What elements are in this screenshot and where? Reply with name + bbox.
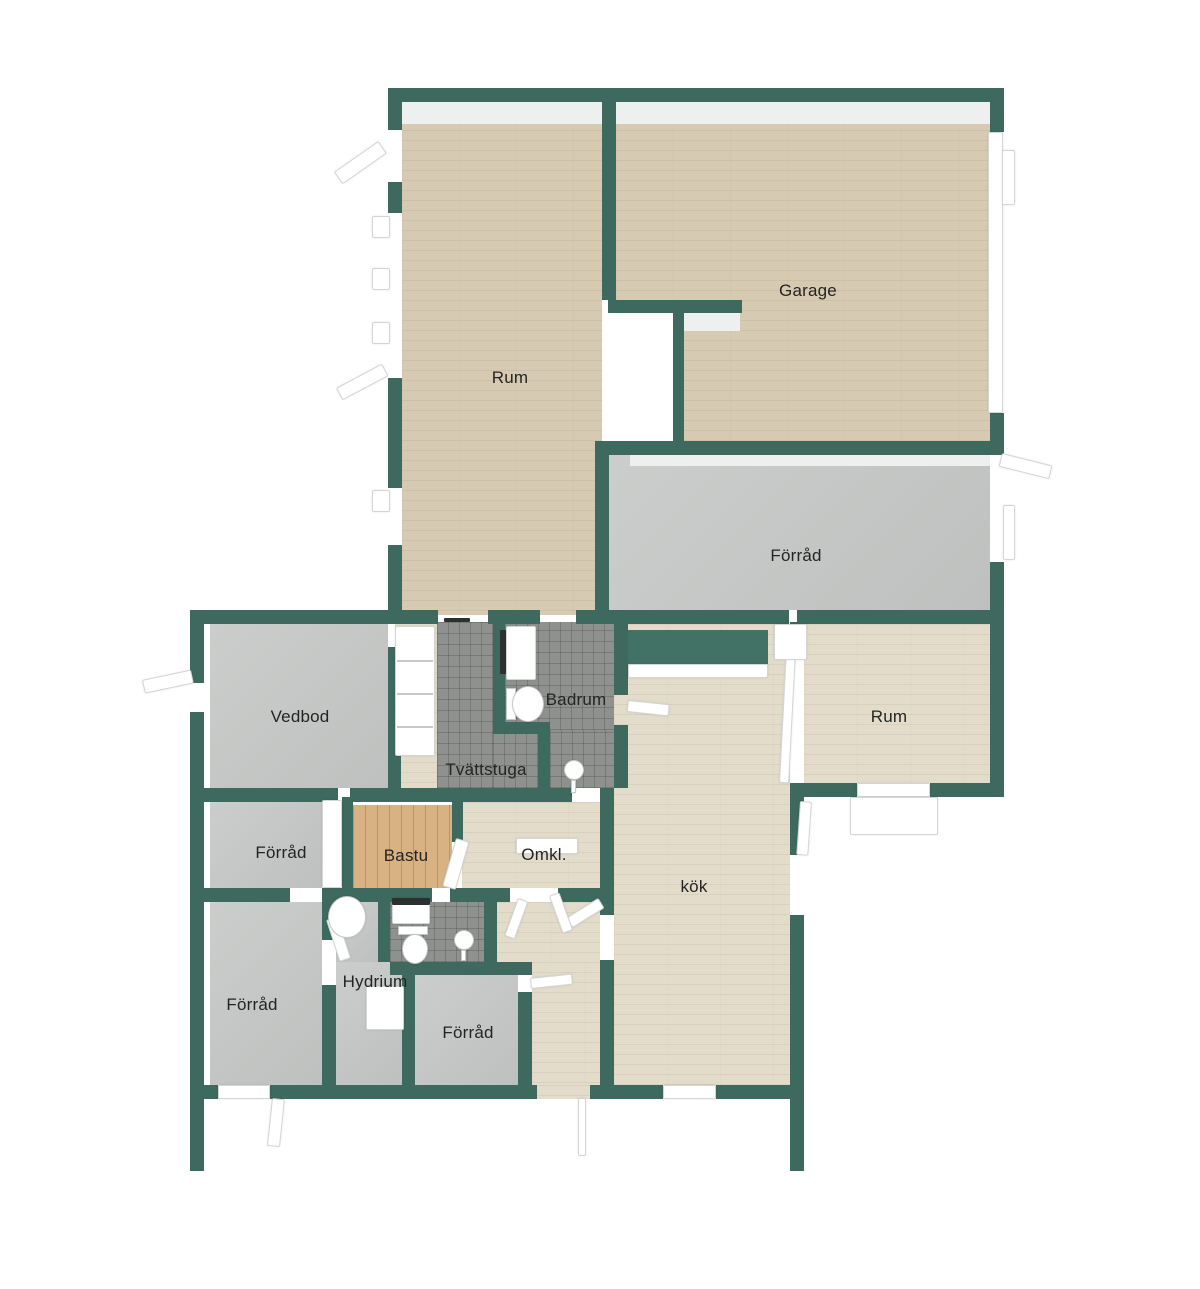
- wall: [484, 888, 497, 962]
- wall: [190, 788, 338, 802]
- wall: [493, 722, 550, 734]
- door-leaf-entrance: [578, 1098, 586, 1156]
- sink-wc-top: [392, 898, 430, 905]
- wall: [196, 610, 388, 624]
- garage-passage: [608, 313, 673, 441]
- shower-head-badrum: [564, 760, 584, 780]
- wall: [538, 734, 550, 788]
- door-strip-forrad-left: [322, 800, 342, 888]
- closet-hall: [395, 626, 435, 756]
- wall: [673, 313, 684, 441]
- wall-face-top: [402, 102, 990, 124]
- room-label-bastu: Bastu: [384, 846, 428, 866]
- garage-window-strip: [988, 132, 1003, 413]
- wall: [595, 441, 609, 624]
- window-sill: [372, 216, 390, 238]
- wall: [614, 725, 628, 788]
- room-label-forrad-left: Förråd: [255, 843, 306, 863]
- shower-stem-wc: [461, 950, 466, 961]
- door-leaf-forrad-main: [999, 453, 1053, 479]
- wall: [930, 783, 1004, 797]
- wall: [518, 992, 532, 1085]
- floor-forrad-bl: [210, 902, 322, 1085]
- wall: [388, 88, 1004, 102]
- floor-forrad-main: [609, 455, 990, 615]
- window-sill: [372, 490, 390, 512]
- room-label-forrad-main: Förråd: [770, 546, 821, 566]
- wall: [190, 610, 204, 683]
- wall: [378, 888, 390, 962]
- chest-hydrium: [366, 986, 404, 1030]
- wall-face-stub: [683, 313, 740, 331]
- door-frame-rum-right: [774, 624, 807, 660]
- wall: [450, 888, 510, 902]
- wall: [576, 610, 602, 624]
- floor-rum-top: [402, 100, 602, 615]
- wall: [790, 915, 804, 1171]
- shower-stem-badrum: [571, 780, 576, 793]
- wall: [602, 88, 616, 300]
- shower-head-wc: [454, 930, 474, 950]
- door-block-bottom-left: [218, 1085, 270, 1099]
- window-block-rum-right: [857, 783, 930, 797]
- toilet-bowl-wc: [402, 934, 428, 964]
- door-block-kok-bottom: [663, 1085, 716, 1099]
- door-leaf-kok-right: [796, 801, 812, 856]
- wall: [388, 545, 402, 610]
- wall-face-forrad: [630, 455, 990, 466]
- door-marker: [444, 618, 470, 622]
- floor-badrum: [550, 730, 614, 788]
- floorplan-canvas: RumGarageFörrådVedbodBadrumTvättstugaRum…: [0, 0, 1200, 1289]
- door-leaf-bottom-left: [267, 1098, 285, 1147]
- wall: [190, 888, 290, 902]
- room-label-forrad-bl: Förråd: [226, 995, 277, 1015]
- closet-divider: [397, 660, 433, 662]
- room-label-omkl: Omkl.: [521, 845, 566, 865]
- window-sill: [372, 322, 390, 344]
- window-sill: [1003, 505, 1015, 560]
- room-label-kok: kök: [680, 877, 707, 897]
- wall: [388, 378, 402, 488]
- door-leaf-rum-exterior: [334, 141, 387, 184]
- window-sill: [372, 268, 390, 290]
- floor-kok: [614, 624, 790, 1085]
- door-leaf-vedbod: [142, 670, 194, 694]
- room-label-vedbod: Vedbod: [271, 707, 330, 727]
- wall: [388, 182, 402, 213]
- wall: [388, 610, 438, 624]
- wall: [600, 788, 614, 915]
- water-heater: [328, 896, 366, 938]
- wall: [190, 712, 204, 1171]
- wall: [797, 610, 1004, 624]
- floor-vedbod: [210, 622, 388, 788]
- wall: [614, 610, 628, 695]
- floor-entrance-gap: [537, 1085, 590, 1099]
- toilet-bowl-badrum: [512, 686, 544, 722]
- wall: [790, 783, 857, 797]
- wall: [388, 88, 402, 130]
- closet-divider: [397, 693, 433, 695]
- wall: [595, 441, 1004, 455]
- kok-wardrobe-front: [628, 664, 768, 678]
- wall: [590, 1085, 663, 1099]
- room-label-hydrium: Hydrium: [343, 972, 408, 992]
- wall: [322, 985, 336, 1085]
- wall: [600, 960, 614, 1085]
- wall: [608, 300, 742, 313]
- window-sill: [1002, 150, 1015, 205]
- wall: [990, 610, 1004, 797]
- wall: [270, 1085, 537, 1099]
- room-label-badrum: Badrum: [546, 690, 607, 710]
- terrace-rum-right: [850, 797, 938, 835]
- wall: [452, 793, 463, 842]
- door-leaf-rum-exterior2: [336, 364, 388, 401]
- wall: [716, 1085, 804, 1099]
- wall: [190, 1085, 218, 1099]
- room-label-forrad-center: Förråd: [442, 1023, 493, 1043]
- room-label-rum-top: Rum: [492, 368, 529, 388]
- wall: [990, 88, 1004, 132]
- kok-wardrobe: [628, 630, 768, 664]
- closet-divider: [397, 726, 433, 728]
- radiator-badrum: [500, 630, 506, 674]
- wall: [342, 797, 353, 888]
- room-label-rum-right: Rum: [871, 707, 908, 727]
- sink-badrum: [506, 626, 536, 680]
- floor-rum-right: [804, 624, 990, 783]
- room-label-garage: Garage: [779, 281, 837, 301]
- room-label-tvattstuga: Tvättstuga: [445, 760, 526, 780]
